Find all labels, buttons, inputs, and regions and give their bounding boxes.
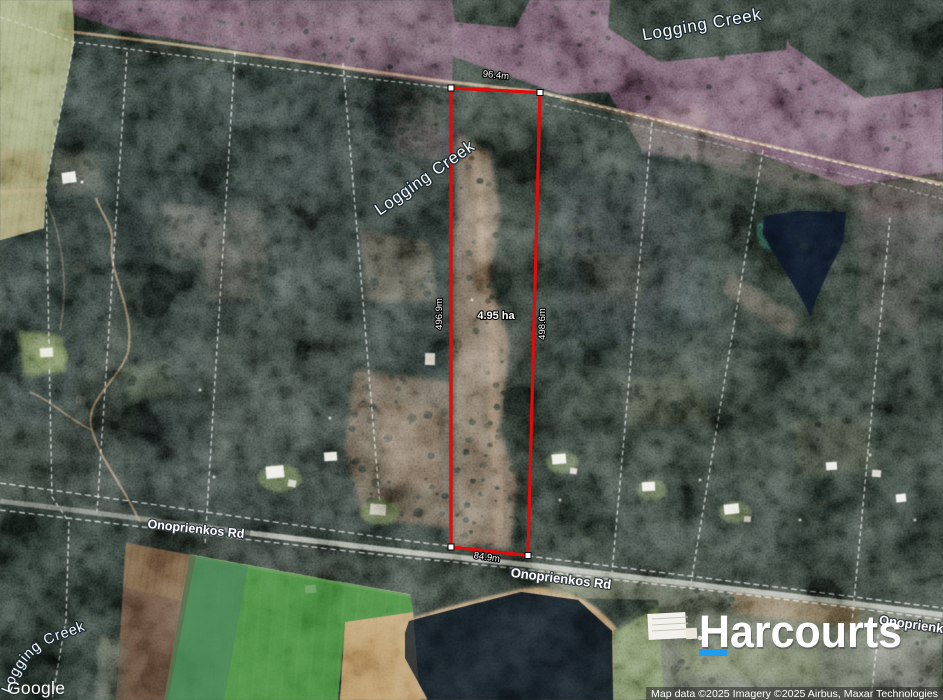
- svg-text:Map data ©2025 Imagery ©2025 A: Map data ©2025 Imagery ©2025 Airbus, Max…: [651, 688, 938, 700]
- svg-text:4.95 ha: 4.95 ha: [477, 310, 515, 322]
- svg-text:Google: Google: [7, 678, 65, 698]
- svg-text:498.6m: 498.6m: [537, 308, 548, 340]
- svg-text:Harcourts: Harcourts: [699, 606, 902, 657]
- svg-text:496.9m: 496.9m: [434, 298, 445, 330]
